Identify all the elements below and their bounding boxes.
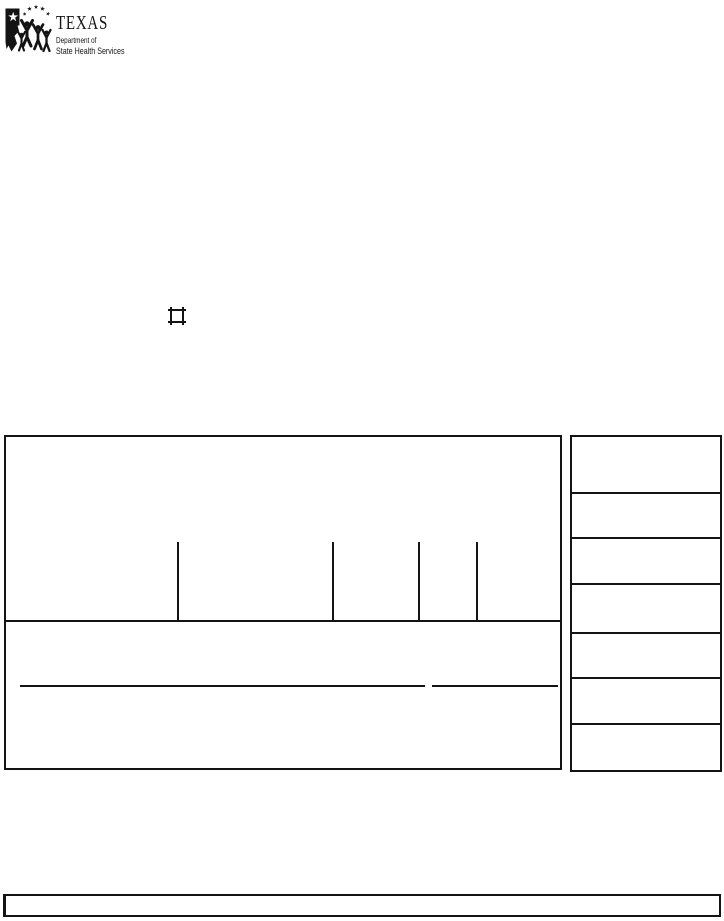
footer-input-box[interactable] (3, 894, 721, 917)
side-cell-2[interactable] (572, 494, 720, 539)
date-line[interactable] (432, 685, 558, 687)
side-column-panel (570, 435, 722, 772)
form-checkbox[interactable] (168, 307, 186, 325)
main-form-panel (4, 435, 562, 770)
details-section[interactable] (6, 437, 560, 622)
logo-agency-line: State Health Services (56, 47, 125, 57)
field-divider (476, 542, 478, 620)
side-cell-5[interactable] (572, 634, 720, 679)
scanned-form-page: TEXAS Department of State Health Service… (0, 0, 724, 921)
signature-section (6, 622, 560, 768)
checkbox-line (168, 321, 186, 323)
side-cell-4[interactable] (572, 585, 720, 634)
logo-title: TEXAS (56, 15, 125, 32)
side-cell-1[interactable] (572, 437, 720, 494)
field-divider (177, 542, 179, 620)
logo-dept-line: Department of (56, 36, 125, 45)
field-divider (418, 542, 420, 620)
texas-dshs-logo-icon (4, 4, 53, 59)
agency-logo: TEXAS Department of State Health Service… (4, 4, 147, 59)
side-cell-7[interactable] (572, 725, 720, 770)
field-divider (332, 542, 334, 620)
agency-logo-text: TEXAS Department of State Health Service… (56, 15, 125, 56)
side-cell-6[interactable] (572, 679, 720, 725)
checkbox-line (168, 309, 186, 311)
side-cell-3[interactable] (572, 539, 720, 585)
signature-line[interactable] (20, 685, 425, 687)
